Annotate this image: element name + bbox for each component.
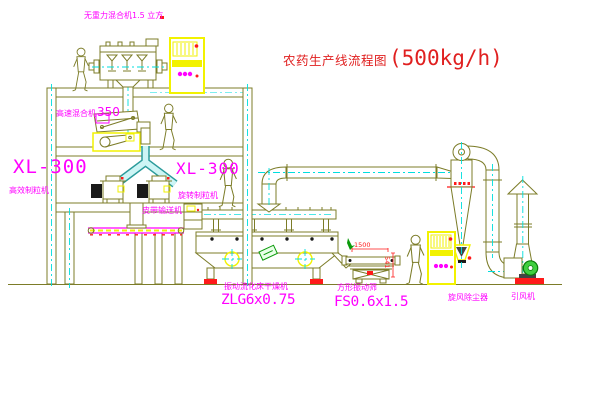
diagram-title: 农药生产线流程图 (500kg/h) <box>283 48 503 69</box>
cyclone-label: 旋风除尘器 <box>448 294 488 302</box>
granulator-left-name-label: 高效制粒机 <box>9 187 49 195</box>
granulator-left-model-label: XL-300 <box>13 158 88 177</box>
fan-label: 引风机 <box>511 293 535 301</box>
screen-length-dimension: 1500 <box>354 242 371 249</box>
dryer-model-label: ZLG6x0.75 <box>221 293 295 308</box>
dryer-name-label: 振动流化床干燥机 <box>224 283 288 291</box>
person-ground <box>406 235 424 284</box>
belt-conveyor <box>88 228 184 284</box>
high-speed-mixer-label: 高速混合机 350 <box>56 106 120 118</box>
flow-diagram-canvas: 无重力混合机1.5 立方 农药生产线流程图 (500kg/h) 高速混合机 35… <box>0 0 600 403</box>
control-cabinet-top <box>170 38 204 93</box>
vibrating-screen <box>342 248 400 283</box>
person-top-floor <box>73 48 89 91</box>
screen-name-label: 方形振动筛 <box>337 284 377 292</box>
fluid-bed-dryer <box>196 207 355 284</box>
exhaust-duct <box>258 164 452 212</box>
control-cabinet-right <box>428 232 455 284</box>
dryer-feed-hopper <box>184 204 202 229</box>
granulator-mid-model-label: XL-300 <box>176 161 240 177</box>
high-speed-mixer-model: 350 <box>97 106 120 118</box>
gravity-mixer <box>89 39 167 88</box>
screen-model-label: FS0.6x1.5 <box>334 295 408 310</box>
building-right-column <box>243 84 252 288</box>
high-speed-mixer-name: 高速混合机 <box>56 110 96 118</box>
title-text: 农药生产线流程图 <box>283 55 387 68</box>
screen-height-dimension: 541 <box>384 256 391 268</box>
belt-conveyor-label: 皮带输送机 <box>142 207 182 215</box>
granulator-mid-name-label: 旋转制粒机 <box>178 192 218 200</box>
title-capacity: (500kg/h) <box>389 48 503 69</box>
gravity-mixer-label: 无重力混合机1.5 立方 <box>84 12 163 20</box>
person-second-floor <box>160 104 177 150</box>
